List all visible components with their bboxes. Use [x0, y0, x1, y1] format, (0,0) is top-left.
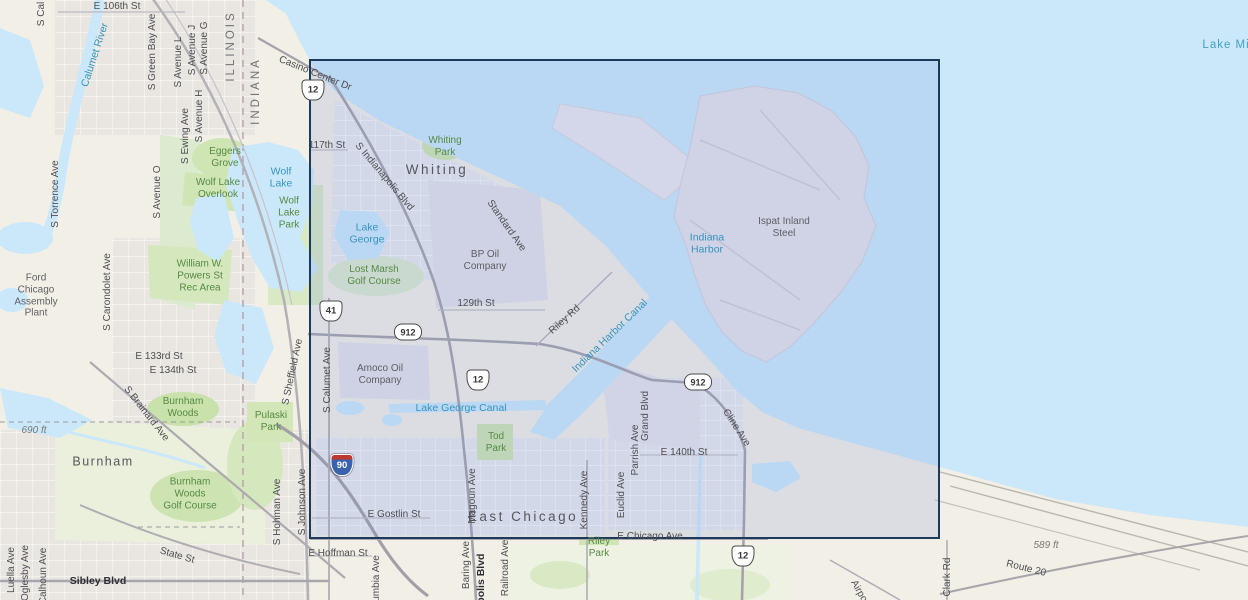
map-label: Sibley Blvd [70, 575, 127, 587]
map-label: Burnham Woods Golf Course [163, 476, 216, 511]
map-label: East Chicago [468, 509, 578, 525]
map-label: Lake George Canal [415, 402, 506, 414]
map-label: S Avenue J [187, 25, 199, 75]
map-label: 129th St [457, 298, 494, 310]
interstate-route-shield-90: 90 [331, 454, 354, 476]
map-label: INDIANA [250, 57, 264, 125]
map-label: Standard Ave [484, 198, 528, 254]
map-label: Pulaski Park [255, 410, 287, 434]
map-label: Whiting Park [428, 135, 461, 159]
map-label: Cline Ave [720, 407, 753, 449]
map-label: Luella Ave [6, 547, 18, 593]
map-label: Ford Chicago Assembly Plant [14, 272, 57, 319]
map-label: S Carondolet Ave [102, 253, 114, 331]
map-label: Burnham Woods [163, 396, 204, 420]
map-label: 117th St [309, 140, 346, 152]
map-label: Wolf Lake Park [278, 195, 300, 230]
map-label: ILLINOIS [225, 10, 239, 81]
map-label: Indianapolis Blvd [475, 554, 487, 600]
map-label: Burnham [72, 455, 133, 470]
map-label: Tod Park [486, 431, 507, 455]
map-label: Calhoun Ave [38, 548, 50, 600]
map-label: Parrish Ave [630, 425, 642, 476]
map-label: S Green Bay Ave [147, 14, 159, 91]
map-label: Wolf Lake [270, 166, 293, 191]
map-label: E Gostlin St [368, 509, 421, 521]
us-route-shield-12: 12 [467, 370, 490, 391]
map-label: 589 ft [1033, 540, 1058, 552]
map-label: E 133rd St [135, 351, 182, 363]
map-label: Oglesby Ave [20, 545, 32, 600]
map-label: Ispat Inland Steel [758, 216, 810, 240]
map-label: Calumet River [79, 21, 111, 88]
map-label: 690 ft [21, 425, 46, 437]
map-label: Casino Center Dr [277, 54, 353, 94]
map-label: E Hoffman St [308, 548, 367, 560]
map-viewport[interactable]: E 106th StS CalCalumet RiverS Green Bay … [0, 0, 1248, 600]
map-label: State St [158, 545, 195, 566]
state-route-shield-912: 912 [684, 374, 712, 391]
map-label: Wolf Lake Overlook [196, 177, 240, 201]
map-label: Whiting [406, 162, 469, 178]
map-label: S Avenue O [152, 165, 164, 218]
map-label: Magoun Ave [467, 468, 479, 523]
map-label: Baring Ave [461, 541, 473, 589]
map-label: Indiana Harbor [690, 232, 724, 257]
map-label: Euclid Ave [616, 472, 628, 519]
map-labels-layer: E 106th StS CalCalumet RiverS Green Bay … [0, 0, 1248, 600]
map-label: S Torrence Ave [50, 160, 62, 227]
map-label: S Brainard Ave [121, 384, 171, 444]
map-label: E Chicago Ave [617, 531, 682, 543]
map-label: S Calumet Ave [322, 347, 334, 413]
map-label: S Hohman Ave [272, 479, 284, 546]
map-label: Riley Park [588, 536, 610, 560]
map-label: Lost Marsh Golf Course [347, 264, 400, 288]
map-label: S Johnson Ave [297, 469, 309, 536]
state-route-shield-912: 912 [394, 324, 422, 341]
map-label: E 134th St [150, 365, 197, 377]
map-label: E 140th St [661, 447, 708, 459]
map-label: Airport [848, 578, 873, 600]
map-label: William W. Powers St Rec Area [177, 258, 224, 293]
map-label: S Avenue L [173, 37, 185, 88]
map-label: E 106th St [94, 1, 141, 13]
us-route-shield-12: 12 [302, 80, 325, 101]
map-label: Clark Rd [942, 558, 954, 597]
map-label: Lake George [349, 222, 384, 247]
map-label: S Ewing Ave [180, 108, 192, 164]
map-label: Columbia Ave [371, 555, 383, 600]
map-label: Eggers Grove [209, 146, 241, 170]
map-label: Riley Rd [547, 303, 583, 337]
us-route-shield-12: 12 [732, 546, 755, 567]
map-label: Railroad Ave [500, 540, 512, 597]
map-label: Lake Michigan [1202, 39, 1248, 53]
map-label: Kennedy Ave [579, 471, 591, 530]
map-label: Route 20 [1005, 558, 1047, 579]
map-label: BP Oil Company [464, 249, 507, 273]
map-label: S Cal [36, 2, 48, 26]
us-route-shield-41: 41 [320, 301, 343, 322]
map-label: Amoco Oil Company [357, 363, 403, 387]
map-label: S Indianapolis Blvd [352, 141, 416, 214]
map-label: S Avenue H [194, 90, 206, 143]
map-label: Grand Blvd [640, 391, 652, 441]
map-label: Indiana Harbor Canal [570, 297, 650, 375]
map-label: S Avenue G [199, 21, 211, 74]
map-label: S Sheffield Ave [280, 338, 306, 406]
